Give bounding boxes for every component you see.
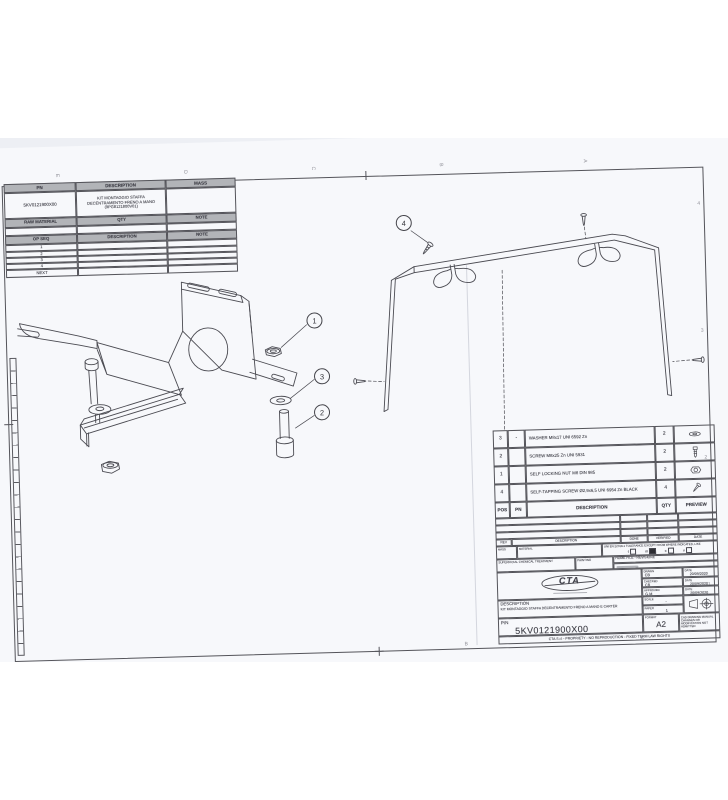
bom-preview [674,424,715,443]
bom-preview [675,478,716,497]
checkbox-icon [667,547,674,554]
bom-header-preview: PREVIEW [676,496,717,513]
material-label: MATERIAL [519,547,533,551]
bom-qty: 2 [656,461,675,480]
checkbox-checked-icon [649,548,656,555]
checkbox-icon [630,548,637,555]
process-mass-value [166,187,237,215]
centering-mark [365,171,366,180]
painting-cell: PAINTING [575,556,613,570]
date-label: DATE [685,588,692,591]
bom-qty: 2 [655,443,674,462]
approved-label: APPROVED [644,588,660,592]
bom-pos: 3 [493,430,508,448]
nut-icon [689,465,701,475]
painting-label: PAINTING [577,558,591,562]
bom-preview [674,442,715,461]
bom-header-qty: QTY [657,497,676,514]
carter-view [334,195,710,440]
zone-label-top: C [310,167,316,171]
zone-label-top: A [582,159,588,163]
process-part-number: 5KV0121900X00 [4,191,77,219]
zone-label-top: E [54,174,60,178]
bom-pos: 2 [493,448,508,466]
mass-label: MASS [498,548,506,551]
description-value: KIT MONTAGGIO STAFFA DECENTRAMENTO FRENO… [501,605,640,613]
bom-pn [508,448,525,466]
drawn-label: DRAWN [644,570,655,573]
tolerance-f: f [628,548,637,555]
date-label: DATE [685,569,692,572]
superficial-label: SUPERFICIAL CHEMICAL TREATMENT [498,559,553,564]
paper-label: PAPER [645,607,654,610]
scanned-drawing-photo: E D C B A 4 3 2 1 B A PN DESCRIPTION MAS… [0,138,728,662]
screw-icon [688,446,702,458]
logo-cell: CTA [497,568,643,600]
bom-pos: 4 [494,484,509,502]
mass-cell: MASS [496,546,517,560]
bom-pn [509,484,526,502]
checked-label: CHECKED [644,580,658,584]
zone-label-top: B [438,163,444,167]
bom-qty: 2 [655,426,674,445]
cad-note-cell: CAD DRAWING MANUAL CHANGES OR MODIFICATI… [679,612,720,631]
logo-text: CTA [538,575,600,587]
tolerance-c: c [665,547,674,554]
checkbox-icon [686,547,693,554]
first-angle-projection-icon [687,597,715,610]
scale-label: SCALE [644,598,653,601]
paper-value: 1 [666,608,683,613]
process-table: PN DESCRIPTION MASS 5KV0121900X00 KIT MO… [4,178,239,280]
drawing-sheet: E D C B A 4 3 2 1 B A PN DESCRIPTION MAS… [0,138,728,662]
bom-qty: 4 [656,479,675,498]
bracket-exploded-view [14,269,342,506]
bom-pn [509,466,526,484]
projection-symbol-cell [683,594,719,613]
tolerance-m: m [645,548,656,555]
zone-label-bottom: B [464,641,468,647]
bom-header-pn: PN [510,502,527,518]
process-part-description: KIT MONTAGGIO STAFFA DECENTRAMENTO FRENO… [76,189,167,218]
bom-header-pos: POS [495,502,510,518]
bom-pn: - [508,430,525,448]
format-value: A2 [644,619,678,629]
zone-label-top: D [182,170,188,174]
bom-preview [675,460,716,479]
title-block: 3 - WASHER M8x17 UNI 6592 Zn 2 2 SCREW M… [493,424,721,646]
format-cell: FORMAT A2 [643,613,679,632]
tolerance-v: v [683,547,692,554]
bom-pos: 1 [494,466,509,484]
centering-mark [375,651,384,652]
cta-logo: CTA [538,574,601,596]
scale-value: - [665,599,682,604]
tapping-screw-icon [690,482,702,494]
format-label: FORMAT [645,616,657,620]
date-label: DATE [685,579,692,582]
washer-icon [687,429,701,439]
